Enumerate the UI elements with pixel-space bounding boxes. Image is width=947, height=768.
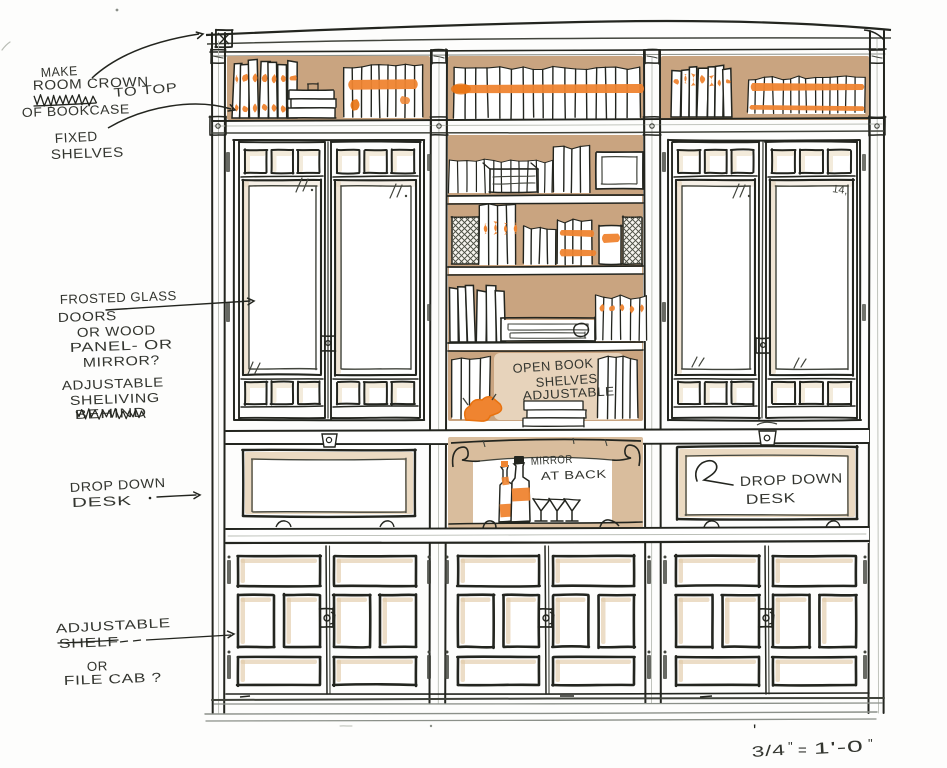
svg-text:MIRROR: MIRROR [531,454,574,468]
svg-text:AT BACK: AT BACK [541,469,607,483]
svg-text:DESK: DESK [746,490,796,507]
svg-text:14,: 14, [832,183,849,197]
svg-text:": " [868,736,873,751]
svg-text:": " [788,739,793,754]
svg-text:=: = [798,742,807,759]
svg-text:MIRROR?: MIRROR? [83,352,160,370]
svg-text:1'-0: 1'-0 [813,738,864,758]
svg-text:SHELVES: SHELVES [51,144,124,162]
svg-text:': ' [753,721,757,740]
svg-text:FIXED: FIXED [54,129,98,146]
svg-text:3/4: 3/4 [751,742,786,761]
svg-text:DESK: DESK [72,493,132,510]
